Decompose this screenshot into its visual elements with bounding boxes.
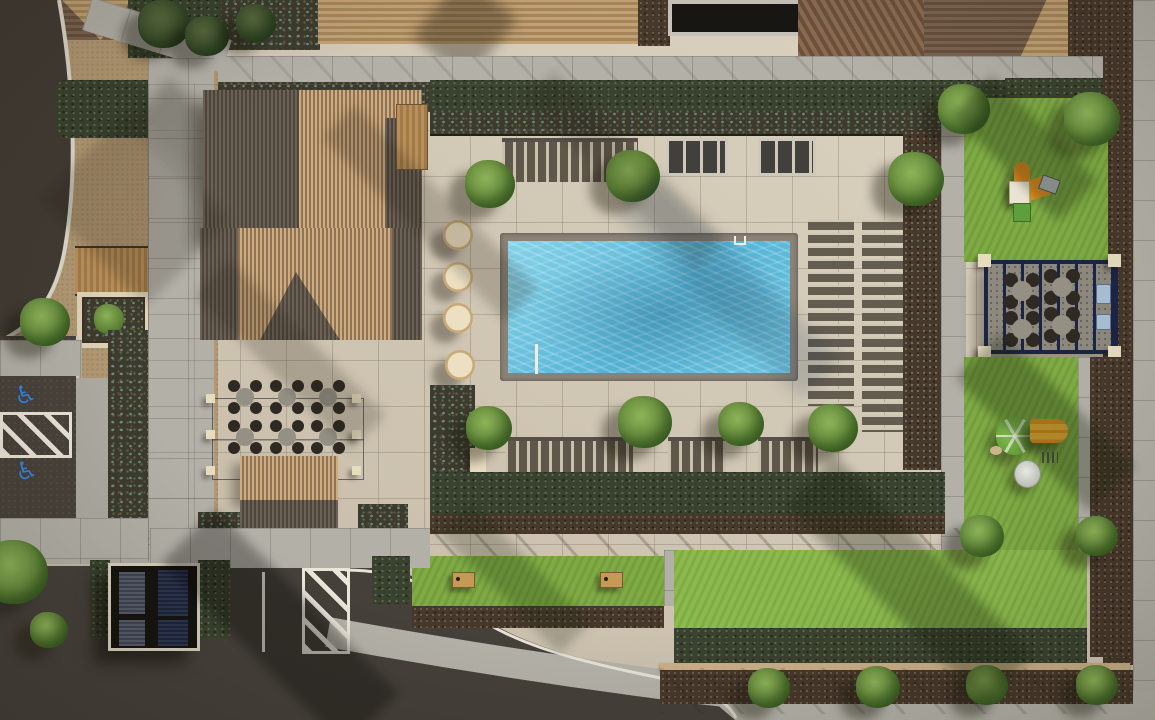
pergola-corner-post bbox=[1108, 254, 1121, 267]
kids-spring-toys bbox=[990, 446, 1002, 455]
bush bbox=[20, 298, 70, 346]
flower-strip-vertical bbox=[108, 330, 150, 530]
play-steps bbox=[1013, 203, 1031, 222]
aerial-site-rendering: ♿ ♿ bbox=[0, 0, 1155, 720]
tree bbox=[618, 396, 672, 448]
round-daybed-3 bbox=[443, 303, 473, 333]
wheelchair-symbol-1: ♿ bbox=[12, 380, 38, 409]
pergola-corner-post bbox=[978, 254, 991, 267]
picnic-table bbox=[1052, 315, 1072, 335]
tree bbox=[465, 160, 515, 208]
pool-ladder bbox=[734, 236, 746, 245]
cornhole-hole-1 bbox=[456, 577, 460, 581]
patio-cover-roof-slope bbox=[240, 500, 338, 530]
tree bbox=[1064, 92, 1120, 146]
sun-lounger-column-2 bbox=[862, 220, 906, 432]
tree bbox=[30, 612, 68, 648]
tree bbox=[236, 4, 276, 42]
cabana-group-3 bbox=[758, 138, 816, 176]
wheelchair-symbol-2: ♿ bbox=[13, 456, 39, 485]
patio-cover-roof bbox=[240, 456, 338, 500]
pergola-post bbox=[206, 394, 215, 403]
walkway-between-parking bbox=[76, 378, 108, 522]
round-daybed-4 bbox=[445, 350, 475, 380]
tree bbox=[1076, 516, 1118, 556]
picnic-table bbox=[1012, 319, 1032, 339]
picnic-table bbox=[1052, 277, 1072, 297]
enclosure-panel bbox=[119, 620, 145, 646]
tree bbox=[1076, 665, 1118, 705]
dining-table bbox=[278, 428, 296, 446]
pergola-post bbox=[352, 466, 361, 475]
cornhole-hole-2 bbox=[604, 577, 608, 581]
dining-table bbox=[236, 388, 254, 406]
clubhouse-roof-south-east bbox=[392, 228, 422, 340]
tree bbox=[138, 0, 190, 48]
pergola-post bbox=[206, 466, 215, 475]
bbq-grill-1 bbox=[1096, 284, 1111, 304]
pool-handrail bbox=[535, 344, 538, 374]
south-bench-group-1 bbox=[505, 437, 633, 477]
tree bbox=[856, 666, 900, 708]
tree bbox=[960, 515, 1004, 557]
shrub-bed-bottom-center bbox=[372, 556, 410, 604]
cabana-group-2 bbox=[666, 138, 728, 176]
kids-canopy bbox=[1014, 460, 1041, 488]
road-top-left bbox=[0, 0, 73, 341]
access-aisle-hatch-left bbox=[0, 412, 72, 458]
south-bench-group-3 bbox=[758, 437, 818, 477]
tree bbox=[185, 16, 229, 56]
mulch-east-kids bbox=[1090, 357, 1133, 657]
tree bbox=[466, 406, 512, 450]
tree bbox=[748, 668, 790, 708]
tree bbox=[718, 402, 764, 446]
bbq-grill-2 bbox=[1096, 314, 1111, 330]
path-between-lawns bbox=[664, 550, 674, 606]
tree bbox=[888, 152, 944, 206]
dining-table bbox=[236, 428, 254, 446]
shrub-pocket-structure-left bbox=[90, 560, 110, 638]
south-bench-group-2 bbox=[668, 437, 726, 477]
enclosure-panel bbox=[119, 572, 145, 614]
pergola-post bbox=[206, 430, 215, 439]
tree bbox=[808, 404, 858, 452]
picnic-table bbox=[1012, 281, 1032, 301]
enclosure-panel bbox=[158, 620, 188, 646]
